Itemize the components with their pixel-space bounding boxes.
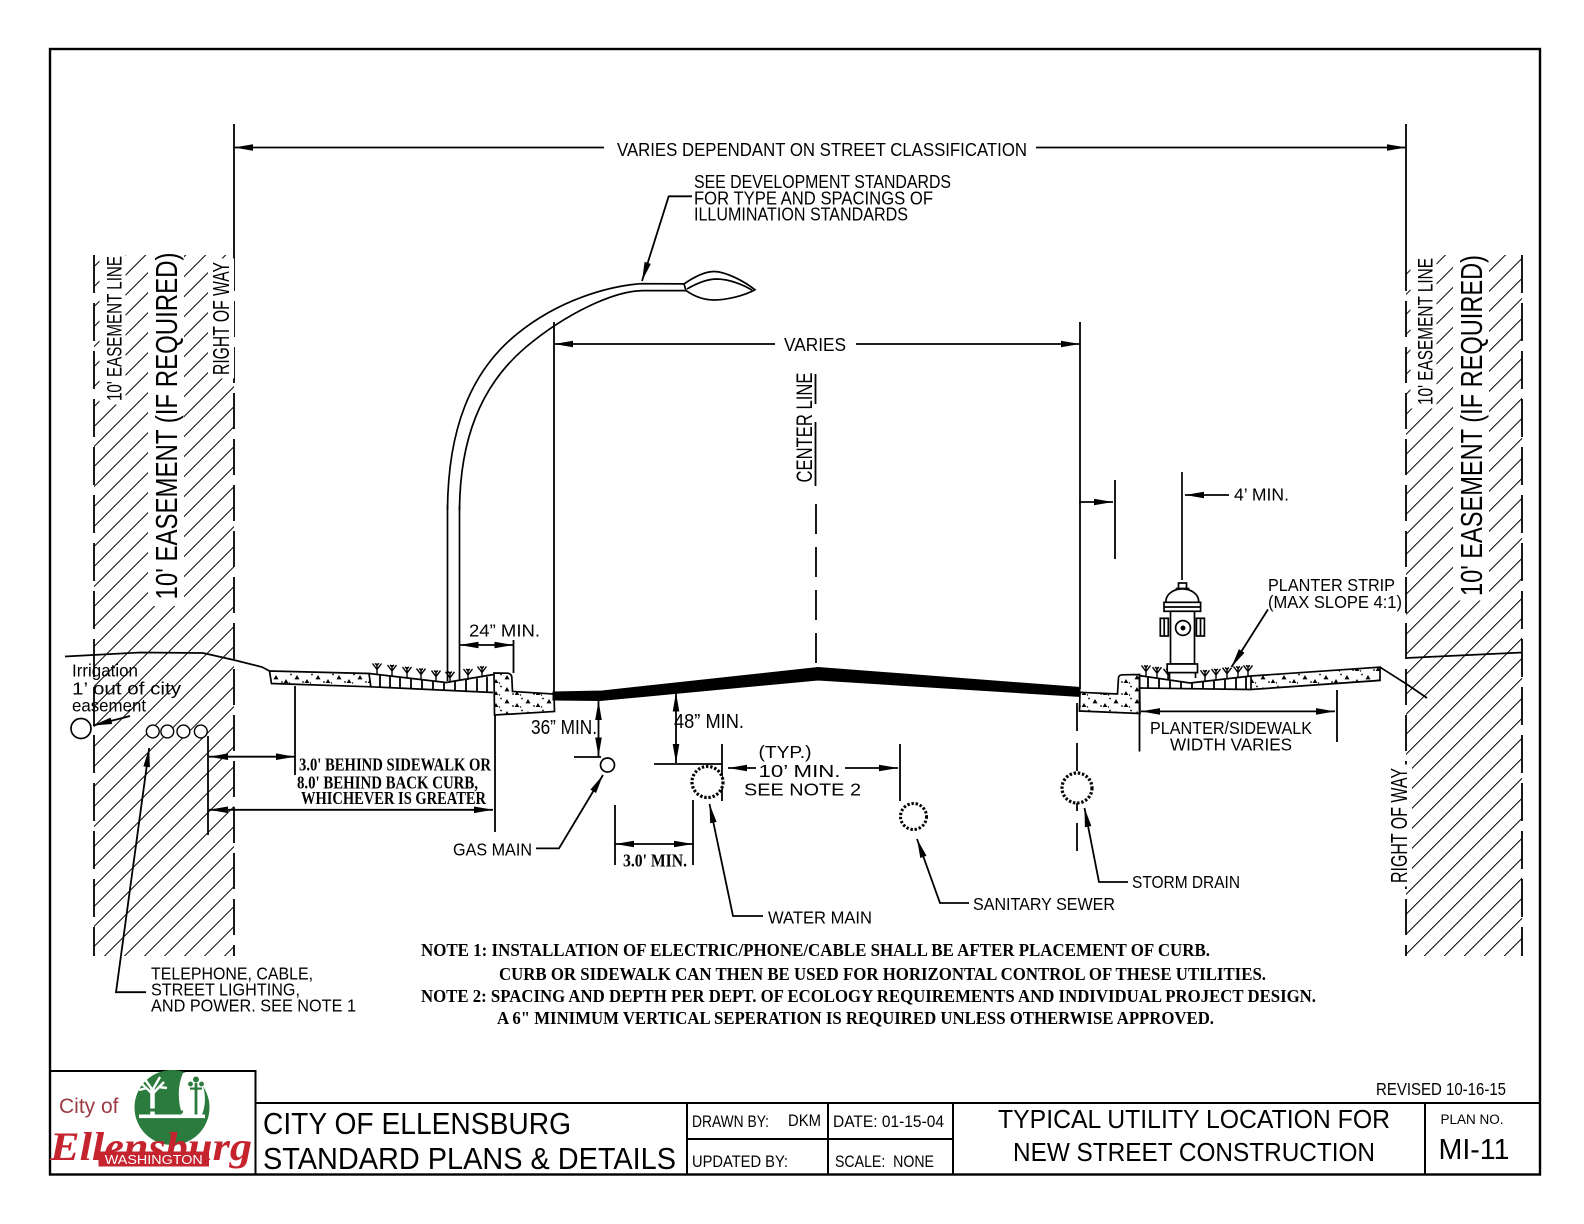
- svg-text:RIGHT OF WAY: RIGHT OF WAY: [208, 262, 234, 375]
- svg-text:ILLUMINATION STANDARDS: ILLUMINATION STANDARDS: [694, 204, 908, 225]
- svg-text:UPDATED BY:: UPDATED BY:: [692, 1152, 788, 1171]
- svg-text:PLAN NO.: PLAN NO.: [1440, 1112, 1503, 1127]
- svg-text:SCALE: NONE: SCALE: NONE: [835, 1152, 934, 1171]
- svg-text:10' EASEMENT LINE: 10' EASEMENT LINE: [104, 256, 127, 401]
- svg-text:36” MIN.: 36” MIN.: [531, 717, 597, 739]
- svg-text:4’ MIN.: 4’ MIN.: [1234, 485, 1289, 505]
- svg-text:3.0' MIN.: 3.0' MIN.: [623, 851, 687, 871]
- svg-text:NEW STREET CONSTRUCTION: NEW STREET CONSTRUCTION: [1013, 1139, 1375, 1167]
- svg-text:CURB OR SIDEWALK CAN THEN BE U: CURB OR SIDEWALK CAN THEN BE USED FOR HO…: [499, 964, 1266, 984]
- svg-text:(TYP.): (TYP.): [759, 742, 812, 762]
- svg-text:10' EASEMENT (IF REQUIRED): 10' EASEMENT (IF REQUIRED): [149, 253, 184, 600]
- svg-text:NOTE 2: SPACING AND DEPTH PER: NOTE 2: SPACING AND DEPTH PER DEPT. OF E…: [421, 986, 1316, 1006]
- svg-text:24” MIN.: 24” MIN.: [469, 621, 540, 641]
- svg-text:REVISED 10-16-15: REVISED 10-16-15: [1376, 1079, 1506, 1099]
- svg-text:WHICHEVER IS GREATER: WHICHEVER IS GREATER: [301, 788, 487, 808]
- svg-text:DRAWN BY:: DRAWN BY:: [692, 1112, 769, 1131]
- svg-text:STANDARD PLANS & DETAILS: STANDARD PLANS & DETAILS: [263, 1141, 676, 1176]
- svg-text:48” MIN.: 48” MIN.: [674, 711, 744, 733]
- svg-text:(MAX SLOPE 4:1): (MAX SLOPE 4:1): [1268, 592, 1402, 612]
- svg-text:10’ MIN.: 10’ MIN.: [759, 761, 841, 781]
- svg-text:NOTE 1: INSTALLATION OF ELECT: NOTE 1: INSTALLATION OF ELECTRIC/PHONE/C…: [421, 940, 1210, 960]
- svg-text:WATER MAIN: WATER MAIN: [768, 908, 872, 928]
- svg-text:RIGHT OF WAY: RIGHT OF WAY: [1386, 768, 1412, 883]
- svg-text:STORM DRAIN: STORM DRAIN: [1132, 872, 1240, 892]
- svg-text:WIDTH VARIES: WIDTH VARIES: [1170, 735, 1292, 755]
- svg-text:VARIES: VARIES: [784, 335, 846, 355]
- svg-text:DATE: 01-15-04: DATE: 01-15-04: [833, 1112, 944, 1131]
- svg-text:DKM: DKM: [788, 1111, 821, 1130]
- svg-text:SANITARY SEWER: SANITARY SEWER: [973, 894, 1115, 914]
- svg-text:Irrigation: Irrigation: [72, 661, 138, 681]
- svg-text:10' EASEMENT LINE: 10' EASEMENT LINE: [1415, 258, 1438, 405]
- svg-text:SEE NOTE 2: SEE NOTE 2: [744, 780, 861, 800]
- svg-text:CENTER LINE: CENTER LINE: [792, 373, 817, 483]
- svg-text:WASHINGTON: WASHINGTON: [105, 1153, 203, 1167]
- svg-text:10' EASEMENT (IF REQUIRED): 10' EASEMENT (IF REQUIRED): [1454, 255, 1489, 596]
- svg-text:VARIES DEPENDANT ON STREET CLA: VARIES DEPENDANT ON STREET CLASSIFICATIO…: [617, 139, 1027, 160]
- svg-text:easement: easement: [72, 696, 146, 716]
- svg-text:GAS MAIN: GAS MAIN: [453, 840, 532, 860]
- svg-text:A 6" MINIMUM VERTICAL SEPERATI: A 6" MINIMUM VERTICAL SEPERATION IS REQU…: [497, 1008, 1214, 1028]
- svg-text:TYPICAL UTILITY LOCATION FOR: TYPICAL UTILITY LOCATION FOR: [998, 1106, 1390, 1134]
- svg-text:City of: City of: [59, 1095, 119, 1118]
- svg-text:MI-11: MI-11: [1439, 1134, 1510, 1166]
- svg-text:CITY OF ELLENSBURG: CITY OF ELLENSBURG: [263, 1106, 571, 1141]
- svg-text:AND POWER. SEE NOTE 1: AND POWER. SEE NOTE 1: [151, 996, 356, 1016]
